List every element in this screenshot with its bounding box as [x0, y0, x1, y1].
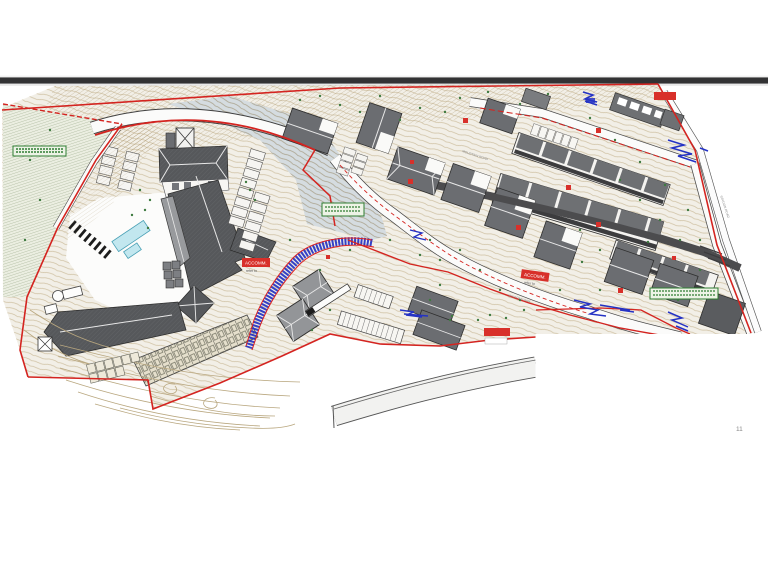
svg-text:11: 11 [736, 426, 743, 433]
svg-text:refer to: refer to [246, 269, 257, 273]
svg-text:ACCOMM.: ACCOMM. [245, 261, 267, 266]
